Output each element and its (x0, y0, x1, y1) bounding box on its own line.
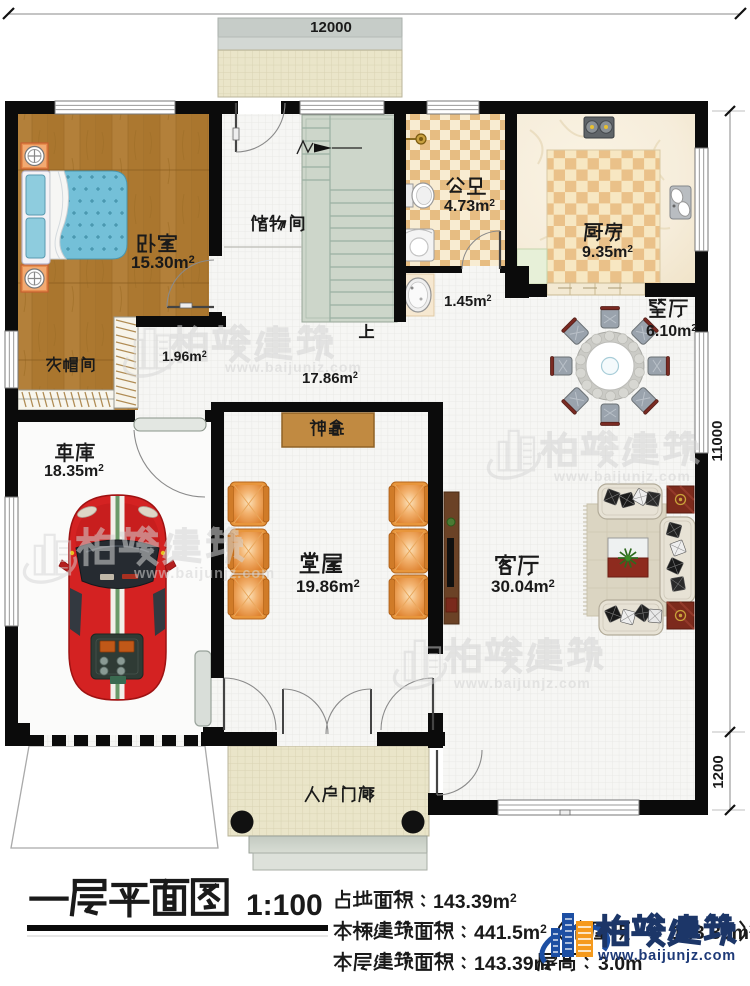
svg-text:1200: 1200 (710, 755, 727, 788)
svg-text:1.96m2: 1.96m2 (162, 348, 207, 364)
svg-text:www.baijunjz.com: www.baijunjz.com (597, 948, 736, 964)
svg-text:9.35m2: 9.35m2 (582, 244, 633, 261)
svg-text:15.30m2: 15.30m2 (131, 253, 195, 272)
svg-text:17.86m2: 17.86m2 (302, 370, 358, 387)
svg-text:30.04m2: 30.04m2 (491, 577, 555, 596)
svg-text:6.10m2: 6.10m2 (646, 323, 697, 340)
svg-text:1:100: 1:100 (246, 889, 323, 922)
svg-text:441.5m2: 441.5m2 (474, 922, 547, 944)
svg-text:143.39m2: 143.39m2 (433, 891, 517, 913)
svg-text:www.baijunjz.com: www.baijunjz.com (553, 468, 691, 484)
svg-text:19.86m2: 19.86m2 (296, 577, 360, 596)
svg-text:18.35m2: 18.35m2 (44, 463, 104, 480)
svg-text:12000: 12000 (310, 19, 352, 36)
svg-text:11000: 11000 (709, 421, 726, 462)
svg-text:4.73m2: 4.73m2 (444, 198, 495, 215)
svg-text:www.baijunjz.com: www.baijunjz.com (453, 675, 591, 691)
svg-text:1.45m2: 1.45m2 (444, 293, 492, 310)
svg-text:www.baijunjz.com: www.baijunjz.com (133, 566, 275, 582)
